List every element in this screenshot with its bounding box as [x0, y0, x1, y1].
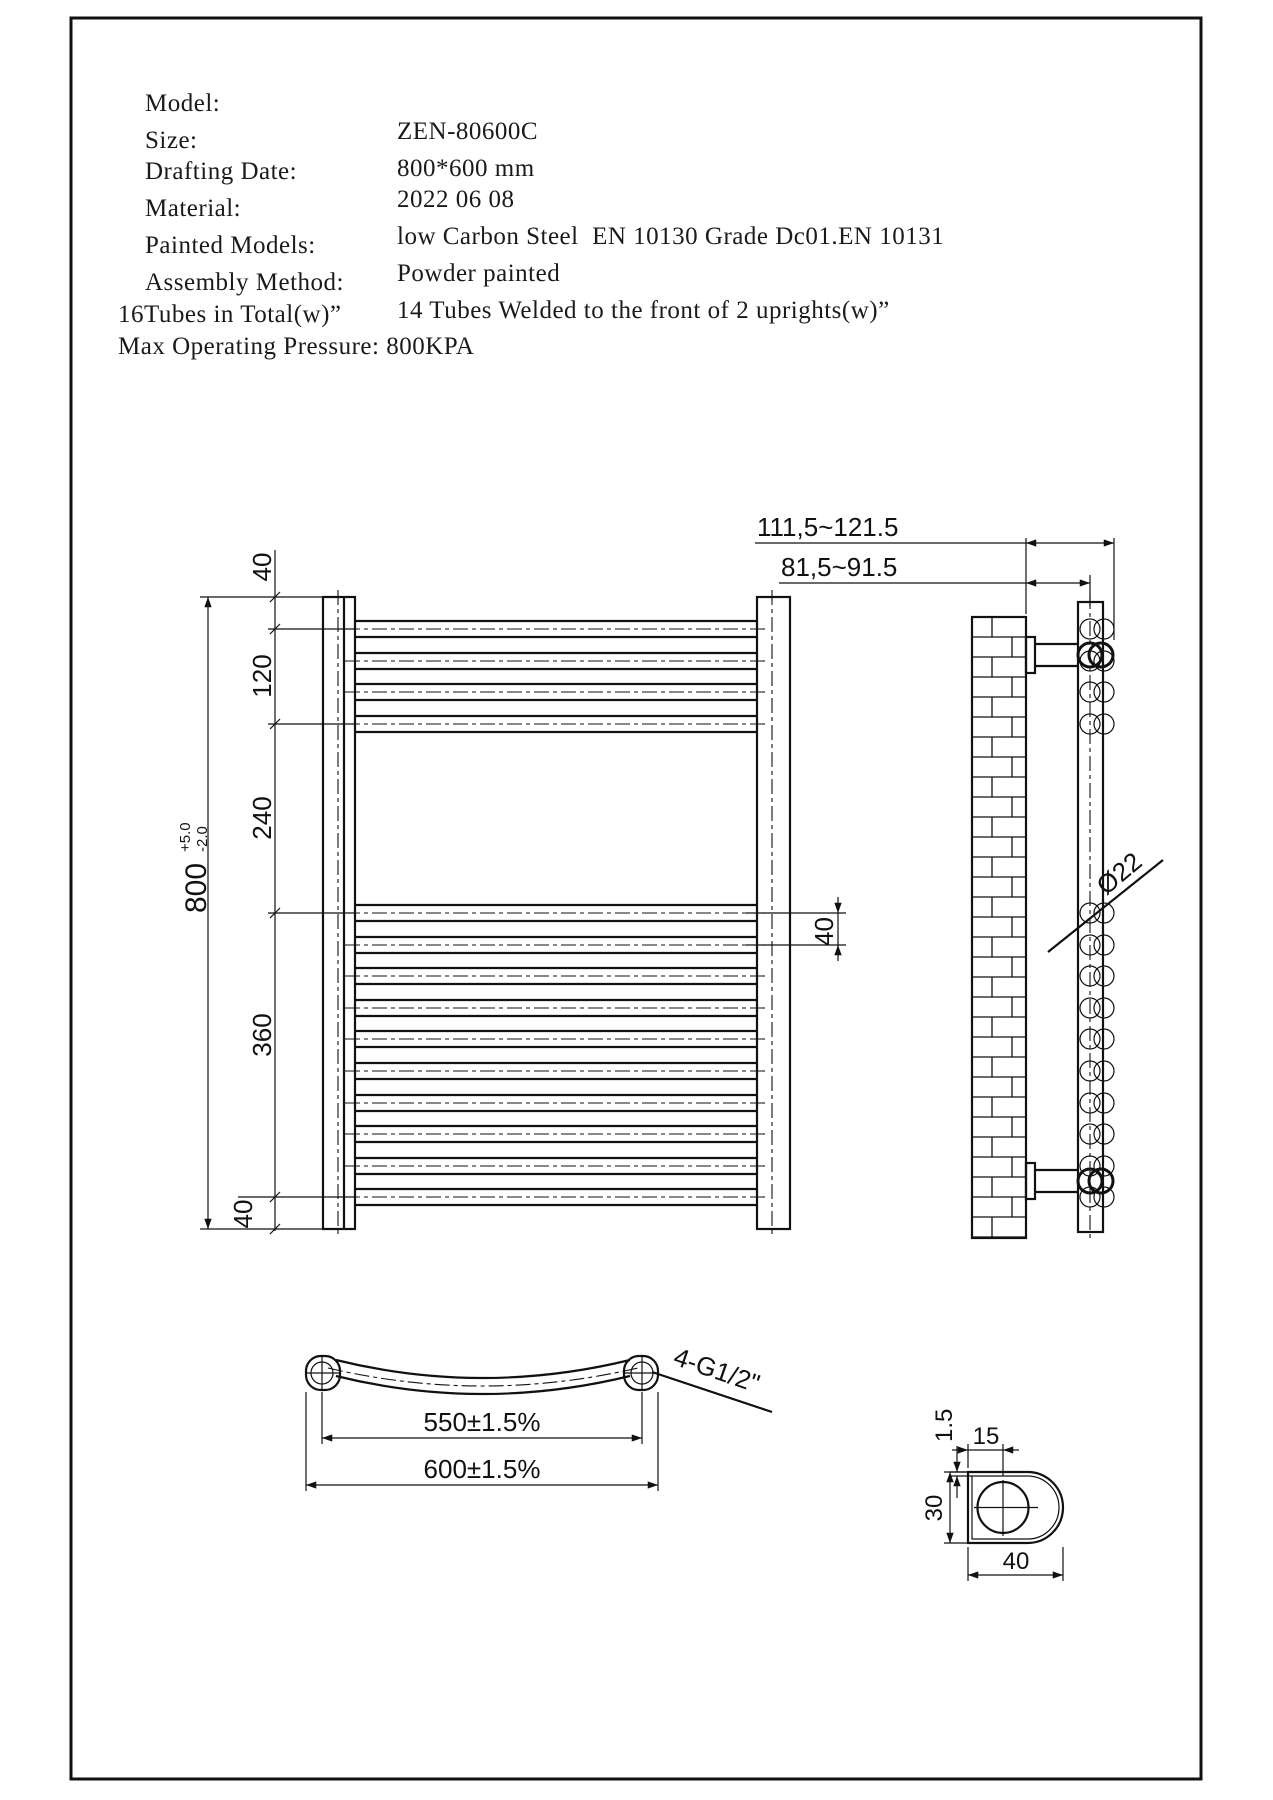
- dim-label-wall-thickness: 1.5: [931, 1409, 958, 1442]
- dim-label-seg-bottom: 40: [228, 1200, 258, 1229]
- dim-chain-segments: 40 120 240 360 40: [228, 550, 280, 1234]
- dim-tube-centres: 550±1.5%: [322, 1392, 642, 1444]
- front-view: 800 +5.0 -2.0 40 120 240 360 40 40: [177, 550, 846, 1236]
- dim-label-tol-minus: -2.0: [194, 826, 211, 852]
- dim-overall-height: 800 +5.0 -2.0: [177, 597, 213, 1229]
- dim-label-profile-width: 40: [1003, 1548, 1030, 1575]
- dim-label-tube-offset: 15: [973, 1423, 1000, 1450]
- tube-diameter-callout: Ø22: [1048, 846, 1163, 952]
- dim-label-tube-pitch: 40: [809, 917, 839, 946]
- dim-wall-thickness: 1.5: [931, 1409, 972, 1498]
- dim-label-tube-diameter: Ø22: [1091, 846, 1148, 901]
- dim-label-overall-height: 800: [180, 863, 213, 913]
- dim-profile-width: 40: [968, 1547, 1063, 1581]
- dim-profile-depth: 30: [921, 1472, 968, 1543]
- wall-section: [972, 617, 1026, 1238]
- wall-bracket-top: [1026, 637, 1113, 673]
- dim-label-tube-centres: 550±1.5%: [424, 1407, 541, 1437]
- dim-tube-pitch: 40: [746, 897, 846, 961]
- drawing-frame: [71, 18, 1201, 1779]
- dim-tube-offset: 15: [952, 1423, 1019, 1476]
- dim-label-connections: 4-G1/2": [670, 1341, 764, 1398]
- side-view: 111,5~121.5 81,5~91.5 Ø22: [755, 512, 1163, 1240]
- connection-thread-callout: 4-G1/2": [652, 1341, 772, 1412]
- wall-bracket-bottom: [1026, 1163, 1113, 1199]
- upright-profile: [968, 1472, 1063, 1543]
- tube-rows: [345, 621, 768, 1205]
- dim-label-profile-depth: 30: [921, 1495, 948, 1522]
- dim-label-seg-lower: 360: [247, 1013, 277, 1056]
- dim-label-seg-top: 40: [247, 553, 277, 582]
- dim-mount-depth-inner: 81,5~91.5: [779, 552, 1090, 606]
- technical-drawing: 800 +5.0 -2.0 40 120 240 360 40 40: [0, 0, 1273, 1800]
- dim-label-seg-upper: 120: [247, 654, 277, 697]
- dim-label-seg-middle: 240: [247, 796, 277, 839]
- plan-view: 550±1.5% 600±1.5% 4-G1/2": [305, 1341, 772, 1491]
- extension-lines: [200, 597, 355, 1229]
- dim-label-mount-depth-inner: 81,5~91.5: [781, 552, 897, 582]
- dim-label-overall-width: 600±1.5%: [424, 1454, 541, 1484]
- tube-end-fitting-left: [305, 1356, 340, 1390]
- section-detail-view: 1.5 15 30 40: [921, 1409, 1063, 1581]
- dim-label-tol-plus: +5.0: [177, 822, 194, 852]
- dim-label-mount-depth-outer: 111,5~121.5: [757, 512, 898, 542]
- curved-tube: [328, 1360, 638, 1394]
